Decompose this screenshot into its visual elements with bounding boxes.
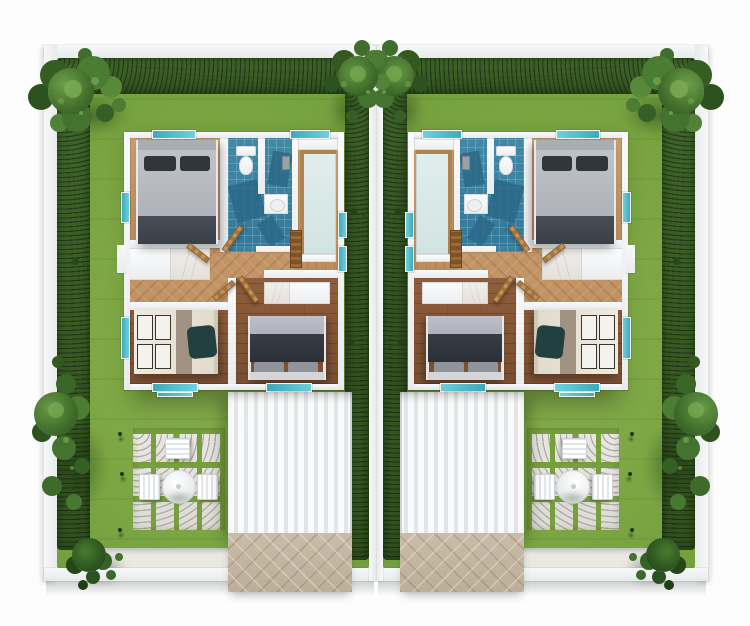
pillow bbox=[542, 156, 572, 171]
bed-guest bbox=[134, 310, 218, 374]
bed-kids bbox=[248, 316, 326, 380]
shower-fixture bbox=[282, 156, 290, 170]
hedge-shrub bbox=[395, 208, 402, 215]
shrub-bottom-corner bbox=[646, 538, 680, 572]
tree-highlight bbox=[386, 66, 402, 82]
pillow bbox=[144, 156, 176, 171]
window-top-kitchen bbox=[290, 130, 330, 139]
shower-fixture bbox=[462, 156, 470, 170]
bathroom-partition bbox=[258, 136, 265, 194]
blanket bbox=[138, 216, 216, 244]
carport-roof bbox=[228, 392, 352, 533]
scene bbox=[0, 0, 750, 626]
driveway bbox=[400, 533, 524, 592]
blanket bbox=[428, 334, 502, 362]
counter-end-cabinet bbox=[414, 138, 454, 150]
boundary-wall-top bbox=[44, 45, 374, 58]
house bbox=[124, 132, 344, 390]
headboard bbox=[250, 372, 324, 380]
counter-wood-rim-top bbox=[416, 150, 452, 154]
window-top-kitchen bbox=[422, 130, 462, 139]
patio-chair-top bbox=[562, 438, 587, 459]
patio-chair-right bbox=[197, 474, 218, 500]
sink-vanity bbox=[264, 194, 288, 214]
pillow bbox=[155, 344, 171, 369]
window-top-bedroom bbox=[152, 130, 196, 139]
lawn-plant bbox=[118, 528, 122, 532]
table-center bbox=[571, 484, 576, 489]
tree-highlight bbox=[350, 66, 366, 82]
bathroom-door-threshold bbox=[496, 246, 524, 252]
window-sill bbox=[157, 392, 193, 397]
blanket bbox=[250, 334, 324, 362]
sink-basin bbox=[467, 199, 482, 212]
counter-wood-rim-top bbox=[300, 150, 336, 154]
pillow bbox=[581, 344, 597, 369]
window-right-kitchen-1 bbox=[405, 212, 414, 238]
tree-divider-top bbox=[374, 56, 414, 96]
toilet-bowl bbox=[499, 156, 513, 175]
lawn-plant bbox=[120, 472, 124, 476]
tree-side-mid bbox=[674, 392, 718, 436]
pillow bbox=[581, 315, 597, 340]
table-shadow bbox=[552, 490, 594, 506]
bed-master bbox=[136, 140, 218, 244]
boundary-wall-divider bbox=[369, 45, 376, 581]
boundary-wall-left bbox=[44, 45, 57, 581]
kitchen-counter bbox=[416, 150, 452, 254]
counter-end-cabinet-bottom bbox=[416, 254, 452, 262]
window-bottom-bedroom-br bbox=[440, 383, 486, 392]
window-right-kitchen-1 bbox=[338, 212, 347, 238]
hedge-shrub bbox=[677, 378, 684, 385]
pillow bbox=[137, 315, 153, 340]
window-left-bedroom-bl bbox=[622, 317, 631, 359]
hedge-shrub bbox=[398, 338, 405, 345]
window-bottom-bedroom-br bbox=[266, 383, 312, 392]
pillow bbox=[137, 344, 153, 369]
desk-marble-top bbox=[462, 282, 488, 304]
hedge-shrub bbox=[72, 258, 79, 265]
window-right-kitchen-2 bbox=[405, 246, 414, 272]
sink-basin bbox=[270, 199, 285, 212]
hedge-shrub bbox=[350, 208, 357, 215]
driveway bbox=[228, 533, 352, 592]
plot-left bbox=[42, 40, 376, 600]
dark-throw-chair bbox=[534, 325, 565, 360]
kitchen-counter bbox=[300, 150, 336, 254]
window-top-bedroom bbox=[556, 130, 600, 139]
counter-end-cabinet-bottom bbox=[300, 254, 336, 262]
wall-hall-bedroom-br bbox=[264, 270, 338, 278]
wall-bedroom-bathroom bbox=[524, 138, 532, 252]
counter-end-cabinet bbox=[298, 138, 338, 150]
pillow bbox=[155, 315, 171, 340]
wall-bedroom-bathroom bbox=[220, 138, 228, 252]
tree-highlight bbox=[688, 402, 704, 418]
table-center bbox=[176, 484, 181, 489]
wall-hall-bedroom-bl bbox=[524, 302, 622, 310]
boundary-wall-top bbox=[378, 45, 708, 58]
hedge-shrub bbox=[68, 378, 75, 385]
headboard bbox=[428, 372, 502, 380]
toilet-tank bbox=[236, 146, 256, 156]
exterior-bay-bump bbox=[626, 245, 635, 273]
window-bottom-bedroom-bl bbox=[152, 383, 198, 392]
window-left-bedroom-bl bbox=[121, 317, 130, 359]
wall-under-bathroom bbox=[460, 246, 496, 252]
window-sill bbox=[559, 392, 595, 397]
ladder-shelf bbox=[450, 230, 462, 268]
plot-right bbox=[376, 40, 710, 600]
wall-hall-bedroom-bl bbox=[130, 302, 228, 310]
bathroom-partition bbox=[487, 136, 494, 194]
toilet-tank bbox=[496, 146, 516, 156]
wall-between-bottom-bedrooms bbox=[228, 278, 236, 384]
pillow bbox=[599, 315, 615, 340]
lawn-plant bbox=[630, 528, 634, 532]
window-left-bedroom-top bbox=[622, 192, 631, 223]
tree-highlight bbox=[64, 80, 82, 98]
lawn-plant bbox=[630, 432, 634, 436]
bathroom-door-threshold bbox=[228, 246, 256, 252]
desk-marble-top bbox=[264, 282, 290, 304]
patio-chair-left bbox=[139, 474, 160, 500]
tree-corner-top bbox=[658, 68, 704, 114]
boundary-wall-divider bbox=[376, 45, 383, 581]
pillow bbox=[599, 344, 615, 369]
lawn-plant bbox=[118, 432, 122, 436]
dark-throw-chair bbox=[186, 325, 217, 360]
bed-master bbox=[534, 140, 616, 244]
duvet bbox=[428, 316, 502, 336]
tree-divider-top bbox=[338, 56, 378, 96]
patio-chair-top bbox=[165, 438, 190, 459]
patio-chair-left bbox=[592, 474, 613, 500]
wall-under-bathroom bbox=[256, 246, 292, 252]
tree-highlight bbox=[670, 80, 688, 98]
wall-hall-bedroom-br bbox=[414, 270, 488, 278]
pillow bbox=[180, 156, 210, 171]
wall-between-bottom-bedrooms bbox=[516, 278, 524, 384]
carport-roof bbox=[400, 392, 524, 533]
duvet bbox=[250, 316, 324, 336]
toilet-bowl bbox=[239, 156, 253, 175]
lawn-plant bbox=[628, 472, 632, 476]
ladder-shelf bbox=[290, 230, 302, 268]
exterior-bay-bump bbox=[117, 245, 126, 273]
sink-vanity bbox=[464, 194, 488, 214]
table-shadow bbox=[158, 490, 200, 506]
hedge-shrub bbox=[673, 258, 680, 265]
tree-corner-top bbox=[48, 68, 94, 114]
pillow bbox=[576, 156, 608, 171]
window-bottom-bedroom-bl bbox=[554, 383, 600, 392]
hedge-shrub bbox=[347, 338, 354, 345]
window-left-bedroom-top bbox=[121, 192, 130, 223]
window-right-kitchen-2 bbox=[338, 246, 347, 272]
blanket bbox=[536, 216, 614, 244]
tree-side-mid bbox=[34, 392, 78, 436]
tree-highlight bbox=[48, 402, 64, 418]
boundary-wall-left bbox=[695, 45, 708, 581]
bed-guest bbox=[534, 310, 618, 374]
shrub-bottom-corner bbox=[72, 538, 106, 572]
house bbox=[408, 132, 628, 390]
bed-kids bbox=[426, 316, 504, 380]
